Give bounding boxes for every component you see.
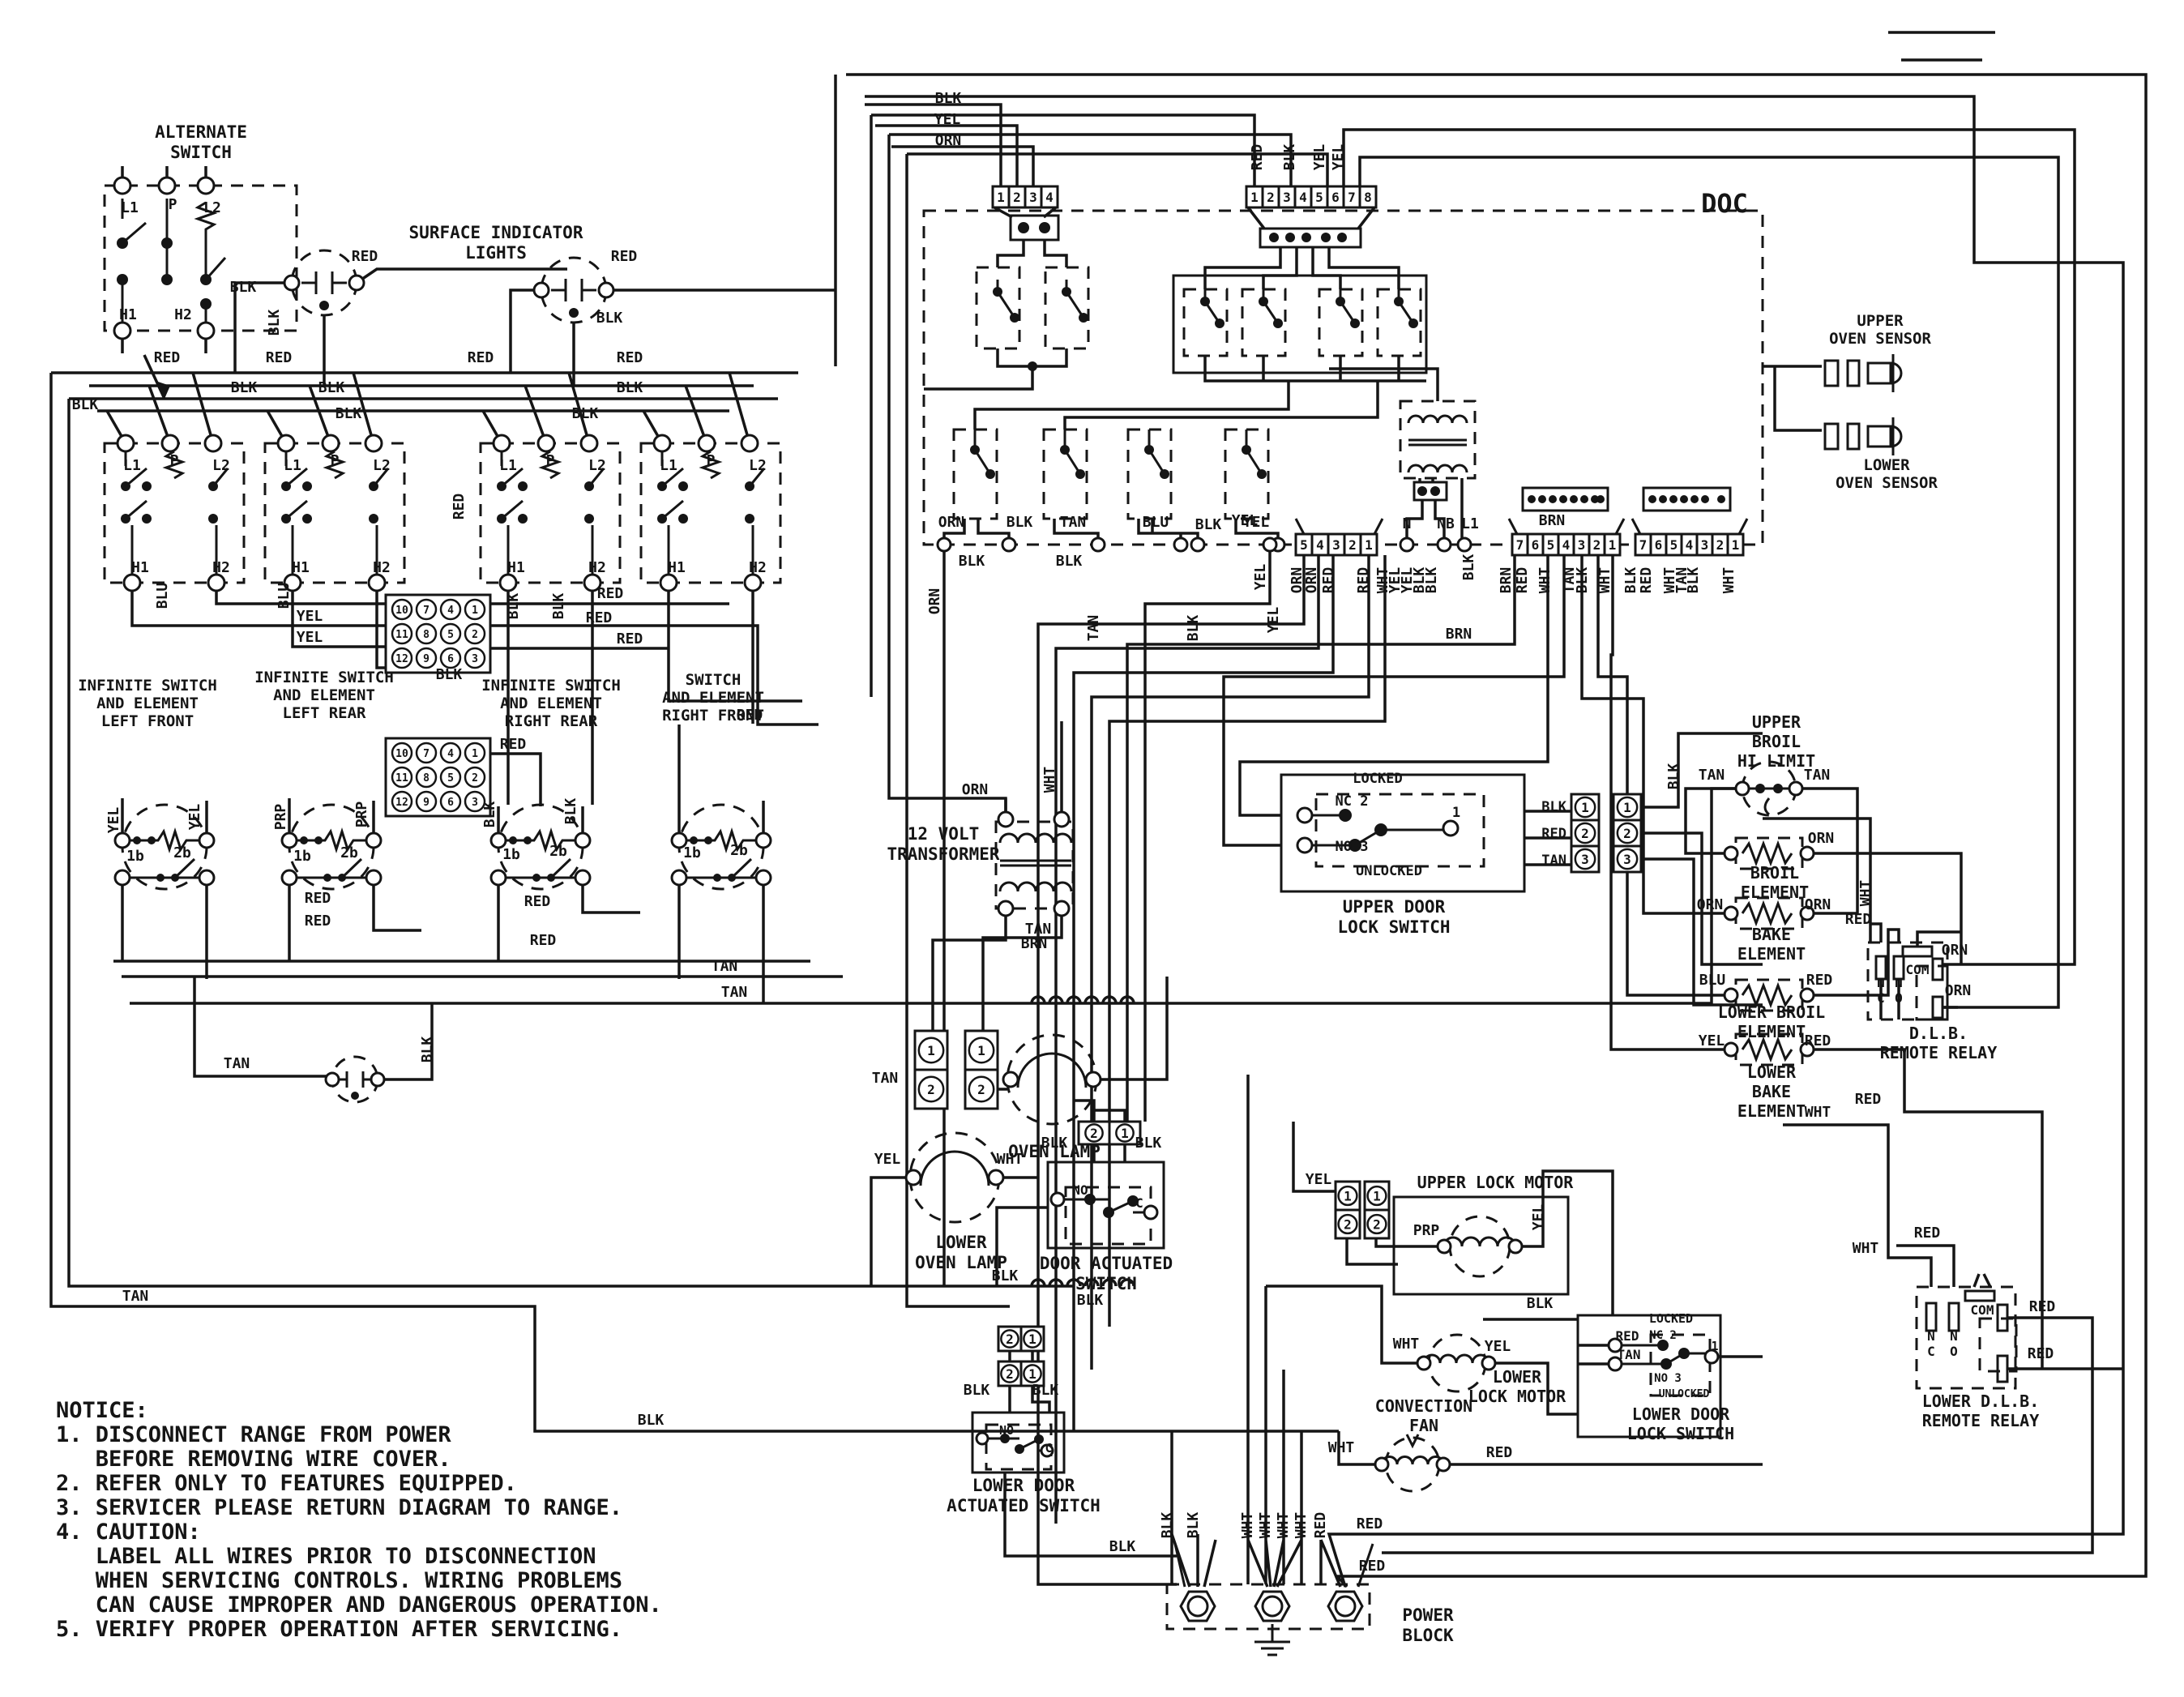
terminal-number: 2 xyxy=(472,772,478,784)
wire-color-label: BLK xyxy=(992,1267,1019,1285)
wire-color-label: RED xyxy=(2028,1345,2054,1362)
wire-color-label: BLK xyxy=(419,1037,436,1063)
wire-color-label: BLK xyxy=(1032,1382,1059,1399)
terminal-number: 6 xyxy=(447,797,454,809)
lower-dlb-nc-label: NC xyxy=(1927,1328,1935,1359)
wire-color-label: 2b xyxy=(730,842,748,859)
wire-color-label: 1b xyxy=(126,848,144,865)
connector-pin-number: 2 xyxy=(1090,1126,1098,1141)
wire-color-label: LOCKED xyxy=(1649,1311,1693,1326)
wire-color-label: RED xyxy=(1514,567,1531,594)
dlb-nc-label: NC xyxy=(1877,975,1885,1006)
wire-color-label: 2b xyxy=(549,843,567,860)
wire-color-label: BLK xyxy=(550,593,567,620)
wire-color-label: RED xyxy=(1845,911,1872,928)
wire-color-label: BLK xyxy=(336,405,362,422)
power-terminal xyxy=(1336,1597,1355,1616)
wire-color-label: RED xyxy=(597,585,624,602)
wire-color-label: BLU xyxy=(154,583,171,609)
lower-oven-lamp-label: LOWEROVEN LAMP xyxy=(915,1233,1007,1272)
wire-color-label: YEL xyxy=(1265,607,1282,634)
connector-pin-number: 2 xyxy=(1373,1217,1381,1233)
notice-line: WHEN SERVICING CONTROLS. WIRING PROBLEMS xyxy=(56,1569,662,1593)
wire-color-label: COM xyxy=(1906,962,1930,977)
terminal-number: 11 xyxy=(395,772,408,784)
connector-pin-number: 4 xyxy=(1316,537,1324,553)
wire-color-label: BLK xyxy=(1135,1135,1162,1152)
plug-8pin: 12345678 xyxy=(1246,186,1376,207)
wire-color-label: TAN xyxy=(1085,615,1102,642)
wire-color-label: RED xyxy=(1312,1512,1329,1539)
connector-pin-number: 1 xyxy=(1344,1189,1352,1204)
wire-color-label: NB xyxy=(1437,515,1455,532)
connector-pin-number: 8 xyxy=(1364,190,1372,205)
doc-label: DOC xyxy=(1701,188,1748,219)
wire-color-label: RED xyxy=(154,349,181,366)
plug-4pin: 1234 xyxy=(993,186,1058,207)
revision-lines xyxy=(1888,32,1995,60)
wire-color-label: H1 xyxy=(507,559,525,576)
connector-pin-number: 3 xyxy=(1623,852,1631,867)
wire-color-label: BLU xyxy=(1143,514,1169,531)
wire-color-label: TAN xyxy=(1804,767,1831,784)
power-block-label: POWERBLOCK xyxy=(1402,1605,1454,1645)
wire-color-label: BRN xyxy=(1498,567,1515,594)
wire-color-label: BLK xyxy=(1195,516,1222,533)
wire-color-label: 1b xyxy=(683,844,701,861)
wire-color-label: BLK xyxy=(935,90,962,107)
wire-color-label: 1b xyxy=(502,846,520,863)
connector-pin-number: 3 xyxy=(1701,537,1709,553)
wire-color-label: BLK xyxy=(1159,1512,1176,1539)
wire-color-label: L1 xyxy=(660,457,677,474)
wire-color-label: BLK xyxy=(505,593,522,620)
power-terminal xyxy=(1263,1597,1282,1616)
wire-color-label: TAN xyxy=(1541,853,1566,869)
wire-color-label: RED xyxy=(1359,1558,1386,1575)
infinite-switch-left-front-label: INFINITE SWITCHAND ELEMENTLEFT FRONT xyxy=(78,677,217,730)
convection-fan-label: CONVECTIONFAN xyxy=(1375,1396,1472,1435)
connector-pin-number: 1 xyxy=(1028,1332,1036,1347)
terminal-number: 1 xyxy=(472,605,478,617)
notice-line: 2. REFER ONLY TO FEATURES EQUIPPED. xyxy=(56,1472,662,1496)
wire-color-label: BLK xyxy=(481,801,498,828)
wire-color-label: BLK xyxy=(1423,567,1440,594)
wire-color-label: YEL xyxy=(934,111,961,128)
connector-pin-number: 4 xyxy=(1686,537,1694,553)
twelve-volt-transformer-label: 12 VOLTTRANSFORMER xyxy=(887,824,999,864)
wire-color-label: UNLOCKED xyxy=(1659,1388,1710,1400)
wire-color-label: YEL xyxy=(1252,564,1269,591)
sensor-bulb-cap xyxy=(1891,354,1901,455)
wire-color-label: PRP xyxy=(353,801,370,828)
wire-color-label: L2 xyxy=(203,199,221,216)
connector-pin-number: 5 xyxy=(1300,537,1308,553)
wire-color-label: RED xyxy=(1855,1091,1882,1108)
broil-element-label: BROILELEMENT xyxy=(1741,863,1809,902)
wire-color-label: RED xyxy=(305,890,331,907)
wire-color-label: WHT xyxy=(1239,1512,1256,1539)
terminal-number: 4 xyxy=(447,748,454,760)
wire-color-label: C xyxy=(1135,1195,1143,1211)
wire-color-label: L2 xyxy=(588,457,606,474)
wire-color-label: BLK xyxy=(1056,553,1083,570)
connector-pin-number: 2 xyxy=(1716,537,1725,553)
plug-lower-door-1: 21 xyxy=(998,1327,1044,1351)
notice-line: 5. VERIFY PROPER OPERATION AFTER SERVICI… xyxy=(56,1618,662,1642)
plug-5pin-doc: 54321 xyxy=(1296,534,1377,555)
infinite-switch-right-rear-label: INFINITE SWITCHAND ELEMENTRIGHT REAR xyxy=(481,677,621,730)
plug-oven-lamp-2: 12 xyxy=(965,1031,998,1109)
wire-color-label: WHT xyxy=(1275,1512,1292,1539)
wire-color-label: RED xyxy=(586,609,613,626)
relay-contact xyxy=(1933,997,1943,1018)
connector-pin-number: 4 xyxy=(1562,537,1571,553)
wire-color-label: YEL xyxy=(297,608,323,625)
lower-dlb-no-label: NO xyxy=(1950,1328,1958,1359)
relay-com-bar xyxy=(1965,1291,1994,1301)
connector-pin-number: 2 xyxy=(1581,826,1589,841)
wire-color-label: TAN xyxy=(1060,514,1087,531)
connector-pin-number: 3 xyxy=(1029,190,1037,205)
wire-color-label: WHT xyxy=(1041,767,1058,793)
wire-color-label: TAN xyxy=(1699,767,1725,784)
connector-pin-number: 5 xyxy=(1547,537,1555,553)
sensor-plug xyxy=(1848,424,1859,449)
wire-color-label: RED xyxy=(266,349,293,366)
wire-color-label: H2 xyxy=(174,306,192,323)
plug-door-actuated: 21 xyxy=(1079,1122,1140,1144)
connector-pin-number: 5 xyxy=(1670,537,1678,553)
connector-pin-number: 4 xyxy=(1299,190,1307,205)
wire-color-label: BLK xyxy=(617,379,643,396)
connector-pin-number: 6 xyxy=(1532,537,1540,553)
relay-contact xyxy=(1933,959,1943,980)
alternate-switch-label: ALTERNATESWITCH xyxy=(155,122,247,162)
dlb-no-label: NO xyxy=(1895,975,1903,1006)
plug-upper-lock-motor-1: 12 xyxy=(1336,1182,1360,1238)
wire-color-label: WHT xyxy=(1393,1336,1420,1353)
wire-color-label: H2 xyxy=(588,559,606,576)
wire-color-label: WHT xyxy=(1536,567,1554,594)
wire-color-label: TAN xyxy=(712,958,738,975)
wire-color-label: RED xyxy=(617,349,643,366)
wire-color-label: RED xyxy=(1638,567,1655,594)
wire-color-label: YEL xyxy=(1306,1171,1332,1188)
upper-door-lock-switch-label: UPPER DOORLOCK SWITCH xyxy=(1337,897,1450,937)
sensor-plug xyxy=(1825,424,1838,449)
connector-pin-number: 2 xyxy=(927,1082,935,1097)
lower-oven-sensor-label: LOWEROVEN SENSOR xyxy=(1836,456,1938,492)
notice-line: 3. SERVICER PLEASE RETURN DIAGRAM TO RAN… xyxy=(56,1496,662,1520)
infinite-switch-left-rear-label: INFINITE SWITCHAND ELEMENTLEFT REAR xyxy=(254,669,394,722)
wire-color-label: RED xyxy=(1249,144,1266,171)
plug-upper-door-lock-1: 123 xyxy=(1571,794,1599,872)
wire-color-label: ORN xyxy=(1697,896,1724,913)
wire-color-label: BLK xyxy=(1460,554,1477,581)
plug-upper-lock-motor-2: 12 xyxy=(1365,1182,1389,1238)
connector-pin-number: 6 xyxy=(1331,190,1340,205)
upper-lock-motor-label: UPPER LOCK MOTOR xyxy=(1417,1173,1575,1192)
wire-color-label: RED xyxy=(1320,567,1337,594)
relay-com-bar xyxy=(1903,947,1932,956)
wire-color-label: BLK xyxy=(1541,799,1566,815)
wire-color-label: NO 3 xyxy=(1654,1372,1682,1385)
wire-color-label: BLK xyxy=(1665,763,1682,790)
lower-door-lock-switch-label: LOWER DOORLOCK SWITCH xyxy=(1627,1404,1734,1443)
wire-color-label: ORN xyxy=(962,781,989,798)
wire-color-label: BLK xyxy=(572,405,599,422)
connector-pin-number: 1 xyxy=(1121,1126,1129,1141)
wire-color-label: P xyxy=(169,196,177,213)
connector-pin-number: 2 xyxy=(1006,1366,1014,1382)
connector-pin-number: 1 xyxy=(1373,1189,1381,1204)
lower-door-actuated-switch-label: LOWER DOORACTUATED SWITCH xyxy=(947,1476,1101,1515)
terminal-number: 10 xyxy=(395,748,408,760)
connector-pin-number: 1 xyxy=(1581,800,1589,815)
connector-pin-number: 2 xyxy=(1348,537,1357,553)
wire-color-label: YEL xyxy=(1232,512,1259,529)
switch-contacts xyxy=(122,199,764,583)
relay-contact xyxy=(1949,1303,1959,1331)
terminal-number: 8 xyxy=(423,772,430,784)
notice-line: 1. DISCONNECT RANGE FROM POWER xyxy=(56,1423,662,1447)
wire-color-label: P xyxy=(546,452,555,469)
wire-color-label: YEL xyxy=(874,1151,901,1168)
wire-color-label: WHT xyxy=(1257,1512,1274,1539)
terminal-number: 3 xyxy=(472,653,478,665)
wire-color-label: WHT xyxy=(1328,1439,1355,1456)
connector-pin-number: 7 xyxy=(1639,537,1648,553)
terminal-number: 1 xyxy=(472,748,478,760)
connector-pin-number: 2 xyxy=(1344,1217,1352,1233)
wire-color-label: H1 xyxy=(131,559,149,576)
connector-pin-number: 3 xyxy=(1283,190,1291,205)
wire-color-label: BLK xyxy=(231,379,258,396)
wiring-diagram-page: 1234123456785432176543217654321123123121… xyxy=(0,0,2184,1697)
wire-color-label: ORN xyxy=(1942,942,1968,959)
wire-color-label: N xyxy=(1403,515,1412,532)
bake-element-label: BAKEELEMENT xyxy=(1737,925,1806,964)
wire-color-label: RED xyxy=(352,248,378,265)
terminal-number: 7 xyxy=(423,605,430,617)
terminal-number: 8 xyxy=(423,629,430,641)
wire-color-label: L1 xyxy=(284,457,301,474)
connector-pin-number: 2 xyxy=(1006,1332,1014,1347)
wire-color-label: L1 xyxy=(499,457,517,474)
sensor-bulb xyxy=(1868,363,1891,383)
wire-color-label: P xyxy=(707,452,716,469)
surface-indicator-lights-label: SURFACE INDICATORLIGHTS xyxy=(409,223,583,263)
wire-color-label: ORN xyxy=(1808,830,1835,847)
relay-contact xyxy=(1926,1303,1936,1331)
wire-color-label: 2b xyxy=(173,844,191,861)
connector-pin-number: 1 xyxy=(1609,537,1617,553)
wire-color-label: RED xyxy=(2029,1298,2056,1315)
terminal-number: 4 xyxy=(447,605,454,617)
terminal-number: 6 xyxy=(447,653,454,665)
wire-color-label: L1 xyxy=(123,457,141,474)
wire-color-label: RED xyxy=(611,248,638,265)
wire-color-label: YEL xyxy=(1485,1338,1511,1355)
wire-color-label: 1 xyxy=(1711,1339,1718,1353)
wire-color-label: RED xyxy=(737,707,763,724)
wire-color-label: RED xyxy=(1541,826,1566,842)
wire-color-label: NO xyxy=(999,1423,1014,1438)
wire-color-label: BLK xyxy=(1185,615,1202,642)
wire-color-label: YEL xyxy=(297,629,323,646)
wire-color-label: YEL xyxy=(186,804,203,831)
wire-color-label: ORN xyxy=(938,514,965,531)
wire-color-label: WHT xyxy=(1720,567,1737,594)
wire-color-label: TAN xyxy=(224,1055,250,1072)
connector-pin-number: 1 xyxy=(927,1043,935,1058)
relay-contact xyxy=(1998,1356,2007,1382)
wire-color-label: BLK xyxy=(562,798,579,825)
wire-color-label: BLK xyxy=(1007,514,1033,531)
power-terminal xyxy=(1188,1597,1207,1616)
wire-color-label: L2 xyxy=(373,457,391,474)
wire-color-label: BLK xyxy=(72,396,99,413)
wire-color-label: RED xyxy=(524,893,551,910)
connector-pin-number: 2 xyxy=(1593,537,1601,553)
wire-color-label: ORN xyxy=(1303,567,1320,594)
wire-color-label: YEL xyxy=(1699,1032,1725,1049)
wire-color-label: RED xyxy=(1805,1032,1831,1049)
wire-color-label: BRN xyxy=(1446,626,1472,643)
connector-pin-number: 7 xyxy=(1348,190,1356,205)
wire-color-label: P xyxy=(331,452,340,469)
upper-oven-sensor-label: UPPEROVEN SENSOR xyxy=(1829,312,1931,348)
wire-color-label: BLK xyxy=(318,379,345,396)
wire-color-label: L1 xyxy=(1461,515,1479,532)
wire-color-label: YEL xyxy=(1530,1204,1547,1231)
wire-color-label: UNLOCKED xyxy=(1356,863,1422,879)
wire-color-label: 2b xyxy=(340,844,358,861)
oven-lamp xyxy=(1007,1035,1096,1124)
plug-oven-lamp-1: 12 xyxy=(915,1031,947,1109)
notice-line: 4. CAUTION: xyxy=(56,1520,662,1545)
wire-color-label: YEL xyxy=(1311,144,1328,171)
wire-color-label: BLK xyxy=(436,666,463,683)
terminal-number: 5 xyxy=(447,629,454,641)
ground-symbol xyxy=(1254,1624,1290,1655)
wire-color-label: NO xyxy=(1072,1182,1088,1198)
connector-pin-number: 1 xyxy=(1250,190,1259,205)
wire-color-label: WHT xyxy=(1293,1512,1310,1539)
wire-color-label: ORN xyxy=(935,132,962,149)
connector-pin-number: 2 xyxy=(1623,826,1631,841)
wire-run xyxy=(924,240,1462,545)
connector-pin-number: 2 xyxy=(1013,190,1021,205)
wire-color-label: H2 xyxy=(212,559,230,576)
wire-color-label: RED xyxy=(1355,567,1372,594)
doc-board-outline xyxy=(924,211,1763,545)
wire-color-label: RED xyxy=(468,349,494,366)
wire-color-label: BLK xyxy=(964,1382,990,1399)
connector-pin-number: 1 xyxy=(1028,1366,1036,1382)
wire-color-label: P xyxy=(170,452,179,469)
wire-color-label: BLK xyxy=(1281,144,1298,171)
wire-color-label: PRP xyxy=(1413,1222,1440,1239)
wire-color-labels: REDREDBLKBLKBLKREDREDREDREDBLKBLKBLKBLKB… xyxy=(72,90,2056,1575)
upper-broil-hi-limit-label: UPPERBROILHI LIMIT xyxy=(1737,712,1815,771)
terminal-number: 10 xyxy=(395,605,408,617)
wire-color-label: RED xyxy=(1914,1225,1941,1242)
wire-color-label: H1 xyxy=(292,559,310,576)
wire-color-label: BLK xyxy=(1185,1512,1202,1539)
wire-color-label: BLK xyxy=(1685,567,1702,594)
wire-color-label: RED xyxy=(500,736,527,753)
wire-color-label: H1 xyxy=(119,306,137,323)
terminal-number: 3 xyxy=(472,797,478,809)
plug-7pin-doc-b: 7654321 xyxy=(1635,534,1743,555)
wire-color-label: H2 xyxy=(373,559,391,576)
wire-color-label: RED xyxy=(617,630,643,648)
connector-pin-number: 2 xyxy=(977,1082,985,1097)
connector-pin-number: 2 xyxy=(1267,190,1275,205)
plug-7pin-doc-a: 7654321 xyxy=(1512,534,1620,555)
notice-line: NOTICE: xyxy=(56,1399,662,1423)
wire-color-label: RED xyxy=(530,932,557,949)
wire-color-label: BRN xyxy=(1021,935,1048,952)
terminal-number: 11 xyxy=(395,629,408,641)
wire-color-label: WHT xyxy=(997,1151,1024,1168)
wire-color-label: L2 xyxy=(749,457,767,474)
wire-color-label: BLK xyxy=(1527,1295,1554,1312)
wire-color-label: RED xyxy=(1357,1515,1383,1532)
wire-color-label: ORN xyxy=(1945,982,1972,999)
connector-pin-number: 6 xyxy=(1655,537,1663,553)
wire-color-label: BLK xyxy=(959,553,985,570)
wire-color-label: L2 xyxy=(212,457,230,474)
wire-color-label: RED xyxy=(1486,1444,1513,1461)
connector-pin-number: 1 xyxy=(1365,537,1373,553)
terminal-block-lower: 107411185212963 xyxy=(386,738,490,816)
dlb-remote-relay-label: D.L.B.REMOTE RELAY xyxy=(1880,1024,1998,1062)
lower-bake-element-label: LOWERBAKEELEMENT xyxy=(1737,1062,1806,1121)
terminal-blocks: 107411185212963107411185212963 xyxy=(386,595,490,816)
connector-pin-number: 7 xyxy=(1516,537,1524,553)
connector-pin-number: 1 xyxy=(1732,537,1740,553)
wire-color-label: COM xyxy=(1971,1302,1994,1318)
wire-color-label: ORN xyxy=(926,588,943,615)
wire-color-label: RED xyxy=(451,494,468,520)
wire-color-label: NC 2 xyxy=(1336,793,1369,810)
wire-color-label: BLK xyxy=(1109,1538,1136,1555)
terminal-number: 12 xyxy=(395,797,408,809)
connector-pin-number: 3 xyxy=(1581,852,1589,867)
notice-line: BEFORE REMOVING WIRE COVER. xyxy=(56,1447,662,1472)
terminal-number: 2 xyxy=(472,629,478,641)
connector-pin-number: 1 xyxy=(977,1043,985,1058)
wire-color-label: WHT xyxy=(1857,880,1874,907)
wire-color-label: WHT xyxy=(1853,1240,1879,1257)
wire-color-label: 1b xyxy=(293,848,311,865)
wire-color-label: BLK xyxy=(1622,567,1639,594)
wire-color-label: NO 3 xyxy=(1336,839,1369,855)
connector-pin-number: 1 xyxy=(997,190,1005,205)
wire-color-label: H1 xyxy=(668,559,686,576)
wire-color-label: H2 xyxy=(749,559,767,576)
wire-color-label: YEL xyxy=(1330,144,1347,171)
wire-color-label: BLK xyxy=(230,279,257,296)
notice-line: CAN CAUSE IMPROPER AND DANGEROUS OPERATI… xyxy=(56,1593,662,1618)
wire-color-label: PRP xyxy=(272,804,289,831)
wire-color-label: WHT xyxy=(1805,1104,1831,1121)
lower-oven-lamp xyxy=(910,1133,999,1222)
connector-pin-number: 4 xyxy=(1045,190,1054,205)
